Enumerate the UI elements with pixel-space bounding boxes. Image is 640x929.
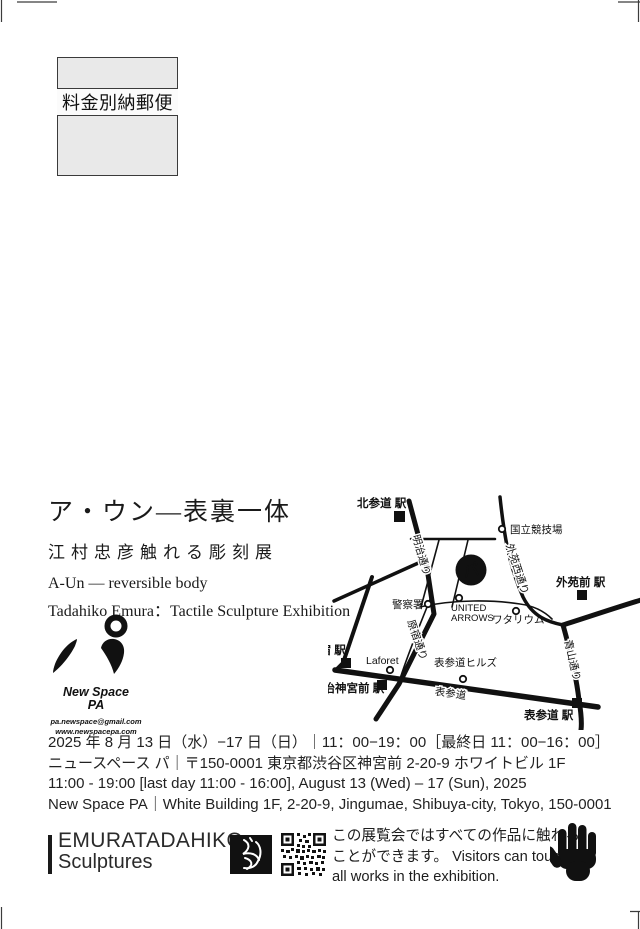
- artist-name: EMURATADAHIKO: [58, 829, 243, 852]
- touch-notice-block: この展覧会ではすべての作品に触れる ことができます。 Visitors can …: [332, 826, 580, 888]
- notice-line2-mixed: ことができます。 Visitors can touch: [332, 847, 580, 868]
- postage-paid-band: 料金別納郵便: [57, 88, 178, 116]
- poi-circle-police: [425, 601, 431, 607]
- access-map: 明治通り 原宿通り 外苑西通り 青山通り 表参道 パ 北参道 駅 外苑前 駅 原…: [328, 478, 640, 730]
- poi-circle-national-stadium: [499, 526, 505, 532]
- info-dates-jp: 2025 年 8 月 13 日（水）−17 日（日）｜11：00−19：00［最…: [48, 733, 612, 754]
- poi-circle-hills: [460, 676, 466, 682]
- poi-label-watarium: ワタリウム: [492, 614, 545, 626]
- event-info-block: 2025 年 8 月 13 日（水）−17 日（日）｜11：00−19：00［最…: [48, 733, 612, 815]
- gallery-logo-block: New Space PA pa.newspace@gmail.com www.n…: [48, 606, 144, 736]
- station-label-harajuku: 原宿 駅: [328, 643, 346, 657]
- title-block: ア・ウン—表裏一体 江村忠彦触れる彫刻展 A-Un — reversible b…: [48, 492, 348, 621]
- poi-label-hills: 表参道ヒルズ: [434, 656, 497, 669]
- notice-line1-jp: この展覧会ではすべての作品に触れる: [332, 826, 580, 847]
- artist-divider-bar: [48, 835, 52, 874]
- station-label-omotesando: 表参道 駅: [523, 708, 574, 722]
- poi-label-arrows: ARROWS: [451, 613, 494, 624]
- hand-icon: [550, 823, 598, 881]
- road-label-aoyama-dori: 青山通り: [561, 638, 583, 682]
- gallery-email: pa.newspace@gmail.com: [48, 717, 144, 727]
- poi-label-police: 警察署: [392, 598, 424, 611]
- info-dates-en: 11:00 - 19:00 [last day 11:00 - 16:00], …: [48, 774, 612, 795]
- artist-medium: Sculptures: [58, 852, 243, 872]
- road-aoyama-east: [563, 600, 640, 625]
- postcard-back: 料金別納郵便 ア・ウン—表裏一体 江村忠彦触れる彫刻展 A-Un — rever…: [0, 0, 640, 929]
- station-square-kitasando: [394, 511, 405, 522]
- info-venue-jp: ニュースペース パ｜〒150-0001 東京都渋谷区神宮前 2-20-9 ホワイ…: [48, 754, 612, 775]
- station-label-gaienmae: 外苑前 駅: [555, 575, 606, 589]
- pa-logo-left-stroke: [53, 639, 77, 673]
- gallery-name-line2: PA: [48, 699, 144, 712]
- postage-paid-label: 料金別納郵便: [62, 89, 173, 115]
- station-square-gaienmae: [577, 590, 587, 600]
- road-label-gaien-nishi-dori: 外苑西通り: [503, 542, 532, 596]
- station-square-harajuku: [341, 658, 351, 668]
- poi-circle-laforet: [387, 667, 393, 673]
- pa-logo-right-stroke: [101, 639, 124, 674]
- poi-circle-united-arrows: [456, 595, 462, 601]
- pa-logo-ring: [108, 618, 125, 635]
- artist-name-block: EMURATADAHIKO Sculptures: [58, 829, 243, 872]
- pa-logo-icon: [48, 606, 144, 678]
- station-label-meijijingumae: 明治神宮前 駅: [328, 681, 385, 695]
- exhibition-subtitle-jp: 江村忠彦触れる彫刻展: [48, 538, 348, 563]
- exhibition-title-en: A-Un — reversible body: [48, 575, 348, 593]
- notice-line3-en: all works in the exhibition.: [332, 867, 580, 888]
- exhibition-title-jp: ア・ウン—表裏一体: [48, 492, 348, 528]
- postage-paid-stamp: 料金別納郵便: [57, 57, 178, 176]
- poi-label-national-stadium: 国立競技場: [510, 523, 563, 536]
- qr-code-icon: [281, 833, 326, 876]
- road-left-branch: [334, 560, 425, 601]
- station-label-kitasando: 北参道 駅: [357, 496, 407, 510]
- info-venue-en: New Space PA｜White Building 1F, 2-20-9, …: [48, 795, 612, 816]
- station-square-omotesando: [572, 698, 582, 708]
- poi-label-laforet: Laforet: [366, 655, 399, 667]
- artist-seal-icon: [230, 835, 272, 874]
